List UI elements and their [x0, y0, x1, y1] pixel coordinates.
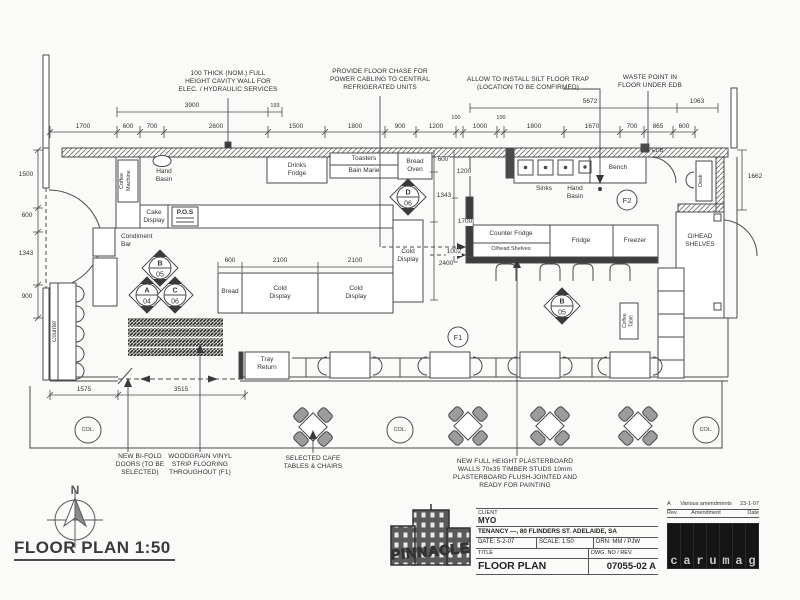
label-counter: Counter — [52, 306, 63, 356]
note-floor-chase: PROVIDE FLOOR CHASE FOR POWER CABLING TO… — [330, 68, 430, 92]
rev-letter: A — [667, 501, 679, 509]
label-bench: Bench — [609, 164, 627, 172]
floorplan-sheet: B 05 A 04 C 06 D 06 — [0, 0, 800, 600]
dim-label: 2100 — [348, 258, 362, 265]
carumag-watermark: c a r u m a g — [667, 523, 759, 569]
marker-letter: B — [559, 299, 564, 306]
label-cold-display-v: Cold Display — [397, 248, 418, 263]
label-cake-display: Cake Display — [143, 209, 164, 224]
dim-label: 900 — [22, 294, 33, 301]
marker-number: 05 — [156, 272, 164, 279]
dim-label: 1662 — [748, 174, 762, 181]
marker-letter: C — [172, 288, 177, 295]
label-drinks-fridge: Drinks Fridge — [288, 162, 306, 177]
label-bread: Bread — [221, 288, 238, 296]
label-hand-basin-2: Hand Basin — [567, 185, 583, 200]
plan-title: FLOOR PLAN 1:50 — [14, 538, 175, 561]
label-bread-oven: Bread Oven — [406, 158, 423, 173]
label-cold-display-2: Cold Display — [345, 285, 366, 300]
watermark-letter: a — [735, 555, 742, 568]
dim-label: 100 — [451, 116, 460, 122]
dim-label: 2100 — [273, 258, 287, 265]
client-label: CLIENT — [478, 510, 656, 517]
dim-label: 600 — [679, 124, 690, 131]
amendment-header: Amendment — [679, 510, 733, 518]
label-pos: P.O.S — [177, 209, 194, 217]
dwg-label: DWG. NO / REV. — [591, 550, 633, 556]
watermark-bar: r — [694, 524, 706, 568]
dim-label: 1800 — [527, 124, 541, 131]
dim-label: 700 — [627, 124, 638, 131]
label-col-3: COL. — [700, 427, 713, 433]
marker-number: 05 — [558, 310, 566, 317]
watermark-bar: u — [707, 524, 719, 568]
note-bifold: NEW BI-FOLD DOORS (TO BE SELECTED) — [116, 453, 164, 477]
watermark-letter: u — [709, 555, 716, 568]
finish-label: F1 — [454, 333, 463, 342]
dim-label: 1700 — [76, 124, 90, 131]
dim-label: 1063 — [690, 99, 704, 106]
drawing-number: 07055-02 A — [588, 559, 658, 575]
dim-label: 1500 — [289, 124, 303, 131]
dim-label: 2600 — [209, 124, 223, 131]
rev-amendment: Various amendments — [679, 501, 733, 509]
label-desk: Desk — [698, 164, 710, 198]
dim-label: 1343 — [19, 251, 33, 258]
label-tray-return: Tray Return — [257, 356, 277, 371]
marker-number: 04 — [143, 299, 151, 306]
dim-label: 700 — [147, 124, 158, 131]
watermark-bar: c — [668, 524, 680, 568]
dim-label: 5672 — [583, 99, 597, 106]
scale-value: 1:50 — [562, 539, 574, 545]
title-label: TITLE — [478, 550, 493, 556]
label-ohead-shelves-small: O/head Shelves — [491, 246, 530, 252]
dim-label: 1200 — [429, 124, 443, 131]
label-counter-fridge: Counter Fridge — [489, 230, 532, 238]
marker-letter: D — [405, 190, 410, 197]
dim-label: 1800 — [348, 124, 362, 131]
label-ohead-shelves: O/HEAD SHELVES — [685, 233, 715, 248]
marker-letter: B — [157, 261, 162, 268]
marker-number: 06 — [404, 201, 412, 208]
dim-label: 600 — [22, 213, 33, 220]
dim-label: 2400 — [438, 261, 454, 268]
date-header: Date — [733, 510, 759, 518]
note-woodgrain: WOODGRAIN VINYL STRIP FLOORING THROUGHOU… — [168, 453, 232, 477]
label-toasters: Toasters — [352, 155, 377, 163]
label-fridge: Fridge — [572, 237, 590, 245]
watermark-letter: c — [670, 555, 677, 568]
label-condiment-bar: Condiment Bar — [121, 233, 152, 248]
rev-date: 23-1-07 — [733, 501, 759, 509]
watermark-bar: a — [733, 524, 745, 568]
rev-header: Rev. — [667, 510, 679, 518]
north-letter: N — [71, 483, 80, 497]
marker-number: 06 — [171, 299, 179, 306]
label-cold-display-1: Cold Display — [269, 285, 290, 300]
label-bain-marie: Bain Marie — [348, 167, 379, 175]
date-value: 5-2-07 — [497, 539, 514, 545]
dim-label: 100 — [496, 116, 505, 122]
note-cafe-tables: SELECTED CAFE TABLES & CHAIRS — [284, 455, 342, 471]
dim-label: 3900 — [185, 103, 199, 110]
note-waste-point: WASTE POINT IN FLOOR UNDER EDB — [618, 74, 682, 90]
dim-label: 900 — [395, 124, 406, 131]
dim-label: 1000 — [473, 124, 487, 131]
dim-label: 600 — [225, 258, 236, 265]
dim-label: 1500 — [19, 172, 33, 179]
dim-label: 1002 — [446, 249, 462, 256]
label-col-2: COL. — [394, 427, 407, 433]
drn-label: DRN: — [596, 539, 611, 545]
dim-label: 600 — [123, 124, 134, 131]
dim-label: 1200 — [456, 169, 472, 176]
watermark-bar: g — [746, 524, 758, 568]
note-silt-trap: ALLOW TO INSTALL SILT FLOOR TRAP (LOCATI… — [467, 76, 589, 92]
marker-letter: A — [144, 288, 149, 295]
finish-label: F2 — [623, 196, 632, 205]
watermark-letter: r — [696, 555, 703, 568]
client-name: MYO — [478, 517, 656, 526]
label-coffee-machine: Coffee Machine — [119, 162, 137, 200]
drawing-title: FLOOR PLAN — [476, 559, 588, 575]
watermark-letter: a — [683, 555, 690, 568]
label-sinks: Sinks — [536, 185, 552, 193]
dim-label: 3515 — [174, 387, 188, 394]
watermark-letter: g — [748, 555, 755, 568]
dim-label: 865 — [653, 124, 664, 131]
label-col-1: COL. — [82, 427, 95, 433]
label-hand-basin: Hand Basin — [156, 168, 172, 183]
label-edb: EDB — [652, 148, 663, 154]
drn-value: MM / PJW — [612, 539, 640, 545]
date-label: DATE: — [478, 539, 495, 545]
dim-label: 1700 — [457, 219, 473, 226]
watermark-letter: m — [722, 555, 729, 568]
note-cavity-wall: 100 THICK (NOM.) FULL HEIGHT CAVITY WALL… — [179, 70, 278, 94]
marker-b05b: B 05 — [544, 288, 580, 324]
cafe-tables — [282, 395, 669, 458]
dim-label: 193 — [270, 104, 279, 110]
dim-label: 1343 — [436, 193, 452, 200]
watermark-bar: m — [720, 524, 732, 568]
dim-label: 600 — [437, 157, 450, 164]
revision-strip: A Various amendments 23-1-07 Rev. Amendm… — [667, 501, 759, 518]
marker-f2: F2 — [617, 190, 637, 210]
label-coffee-table: Coffee Table — [622, 305, 636, 337]
marker-d06: D 06 — [390, 179, 426, 215]
scale-label: SCALE: — [539, 539, 560, 545]
tenancy-address: TENANCY —, 80 FLINDERS ST. ADELAIDE, SA — [478, 527, 656, 536]
marker-f1: F1 — [448, 327, 468, 347]
dim-label: 1575 — [77, 387, 91, 394]
title-block: CLIENT MYO TENANCY —, 80 FLINDERS ST. AD… — [476, 508, 658, 575]
label-freezer: Freezer — [624, 237, 646, 245]
pinnacle-logo: PINNACLE — [390, 504, 471, 565]
watermark-bar: a — [681, 524, 693, 568]
dim-label: 1670 — [585, 124, 599, 131]
note-plasterboard: NEW FULL HEIGHT PLASTERBOARD WALLS 70x35… — [453, 458, 577, 491]
